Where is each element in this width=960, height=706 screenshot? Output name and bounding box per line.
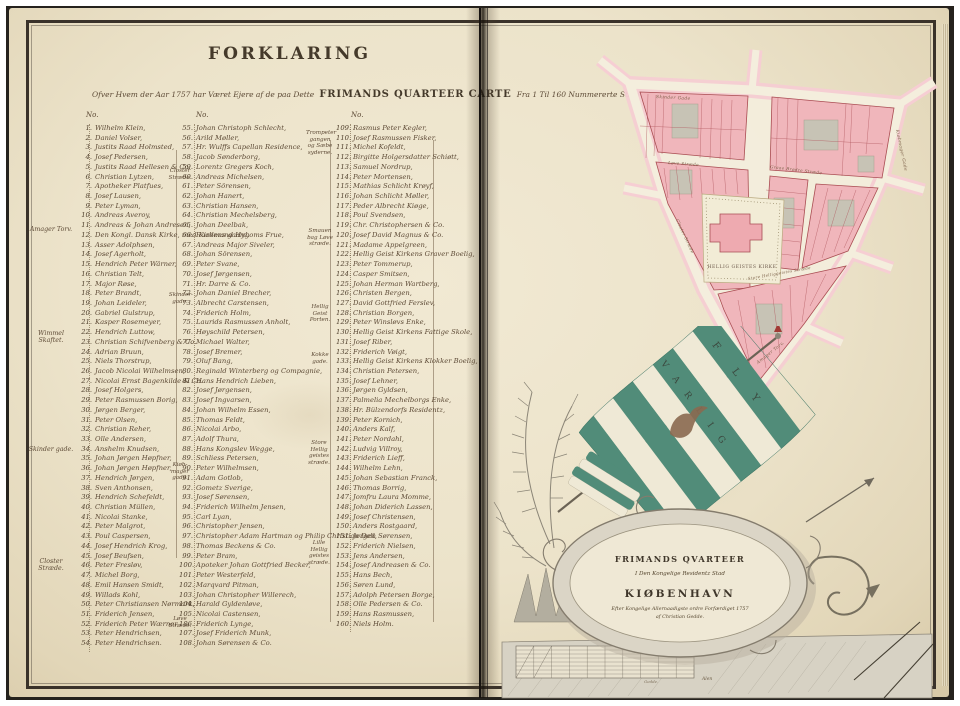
legend-entry: 121.Madame Appelgreen, xyxy=(336,241,478,251)
legend-entry: 156.Søren Lund, xyxy=(336,581,478,591)
entry-number: 130. xyxy=(336,328,353,336)
entry-number: 110. xyxy=(336,134,353,142)
entry-owner-name: Peter Svane, xyxy=(196,260,240,268)
legend-entry: 133.Hellig Geist Kirkens Klokker Boelig, xyxy=(336,357,478,367)
entry-owner-name: Emil Hansen Smidt, xyxy=(95,581,164,589)
entry-owner-name: Josef Agerholt, xyxy=(95,250,146,258)
legend-entry: 114.Peter Mortensen, xyxy=(336,173,478,183)
entry-owner-name: Christian Telt, xyxy=(95,270,144,278)
entry-number: 77. xyxy=(179,338,196,346)
entry-number: 42. xyxy=(78,522,95,530)
entry-owner-name: Johan Christoph Schlecht, xyxy=(196,124,286,132)
margin-label-kokkegade: Kokke gade. xyxy=(306,352,334,365)
margin-label-store-helliggeiststraede: Store Hellig geistes stræde. xyxy=(304,440,334,466)
entry-number: 15. xyxy=(78,260,95,268)
entry-owner-name: Oluf Bang, xyxy=(196,357,233,365)
entry-owner-name: Johan Sörensen, xyxy=(196,250,252,258)
entry-number: 64. xyxy=(179,211,196,219)
entry-owner-name: Hellig Geist Kirkens Graver Boelig, xyxy=(353,250,475,258)
legend-entry: 118.Poul Svendsen, xyxy=(336,211,478,221)
entry-number: 55. xyxy=(179,124,196,132)
margin-label-klosterstraede: Closter Stræde. xyxy=(28,558,74,573)
entry-owner-name: Michael Walter, xyxy=(196,338,250,346)
legend-entry: 131.Josef Riber, xyxy=(336,338,478,348)
entry-number: 113. xyxy=(336,163,353,171)
cartouche-commission-line: Efter Kongelige Allernaadigste ordre For… xyxy=(610,606,749,612)
entry-owner-name: Andreas Michelsen, xyxy=(196,173,264,181)
entry-number: 65. xyxy=(179,221,196,229)
entry-number: 142. xyxy=(336,445,353,453)
entry-owner-name: Josef Lehner, xyxy=(353,377,398,385)
entry-number: 80. xyxy=(179,367,196,375)
entry-number: 50. xyxy=(78,600,95,608)
margin-label-vimmelskaftet: Wimmel Skaftet. xyxy=(28,330,74,345)
entry-number: 100. xyxy=(179,561,196,569)
entry-number: 66. xyxy=(179,231,196,239)
cartouche-oval xyxy=(543,496,820,665)
entry-number: 104. xyxy=(179,600,196,608)
entry-owner-name: Christian Borgen, xyxy=(353,309,414,317)
entry-owner-name: Thomas Feldt, xyxy=(196,416,245,424)
legend-entry: 132.Friderich Vøigt, xyxy=(336,348,478,358)
entry-owner-name: Johan Herman Wartberg, xyxy=(353,280,440,288)
entry-number: 99. xyxy=(179,552,196,560)
entry-number: 44. xyxy=(78,542,95,550)
entry-number: 41. xyxy=(78,513,95,521)
entry-owner-name: Søren Lund, xyxy=(353,581,395,589)
entry-owner-name: Samuel Nordrup, xyxy=(353,163,413,171)
legend-entry: 116.Johan Schlicht Møller, xyxy=(336,192,478,202)
entry-number: 22. xyxy=(78,328,95,336)
entry-number: 19. xyxy=(78,299,95,307)
margin-label-skindergade: Skinder gade. xyxy=(28,446,74,453)
legend-entry: 108.Johan Sørensen & Co. xyxy=(179,639,377,649)
entry-owner-name: Friderich Holm, xyxy=(196,309,251,317)
entry-owner-name: Olle Andersen, xyxy=(95,435,146,443)
entry-owner-name: Poul Svendsen, xyxy=(353,211,405,219)
entry-number: 56. xyxy=(179,134,196,142)
entry-owner-name: Major Røse, xyxy=(95,280,137,288)
entry-number: 126. xyxy=(336,289,353,297)
entry-owner-name: Adolph Petersen Borge, xyxy=(353,591,435,599)
entry-number: 144. xyxy=(336,464,353,472)
map-church-label: Hellig Geistes Kirke xyxy=(708,264,777,270)
entry-number: 70. xyxy=(179,270,196,278)
entry-owner-name: Mathias Schlicht Krøyf, xyxy=(353,182,434,190)
entry-owner-name: Johan Hanert, xyxy=(196,192,244,200)
legend-column-3: 109.Rasmus Peter Kegler,110.Josef Rasmus… xyxy=(336,124,478,629)
scanned-atlas-spread: { "page": { "title": "FORKLARING" }, "su… xyxy=(0,0,960,706)
entry-number: 32. xyxy=(78,425,95,433)
entry-owner-name: Casper Smitsen, xyxy=(353,270,410,278)
legend-entry: 140.Anders Kalf, xyxy=(336,425,478,435)
entry-owner-name: Birgitte Holgersdatter Schiøtt, xyxy=(353,153,459,161)
margin-label-lille-helliggeiststraede: Lille Hellig geistes stræde. xyxy=(304,540,334,566)
entry-number: 13. xyxy=(78,241,95,249)
entry-number: 37. xyxy=(78,474,95,482)
entry-number: 101. xyxy=(179,571,196,579)
legend-entry: 157.Adolph Petersen Borge, xyxy=(336,591,478,601)
entry-number: 88. xyxy=(179,445,196,453)
entry-owner-name: Peter Tommerup, xyxy=(353,260,413,268)
entry-number: 31. xyxy=(78,416,95,424)
entry-number: 8. xyxy=(78,192,95,200)
entry-number: 116. xyxy=(336,192,353,200)
entry-number: 119. xyxy=(336,221,353,229)
entry-number: 118. xyxy=(336,211,353,219)
entry-number: 135. xyxy=(336,377,353,385)
entry-number: 11. xyxy=(78,221,95,229)
entry-owner-name: Apotheker Platfues, xyxy=(95,182,163,190)
legend-entry: 109.Rasmus Peter Kegler, xyxy=(336,124,478,134)
legend-entry: 143.Friderich Lieff, xyxy=(336,454,478,464)
entry-number: 26. xyxy=(78,367,95,375)
subtitle-lead: Ofver Hvem der Aar 1757 har Været Ejere … xyxy=(92,90,314,99)
entry-owner-name: Arild Møller, xyxy=(196,134,239,142)
entry-number: 79. xyxy=(179,357,196,365)
entry-number: 76. xyxy=(179,328,196,336)
cartouche-author-line: af Christian Gedde. xyxy=(656,614,705,620)
legend-entry: 141.Peter Nordahl, xyxy=(336,435,478,445)
entry-number: 122. xyxy=(336,250,353,258)
entry-owner-name: Hans Kongslev Wegge, xyxy=(196,445,275,453)
entry-number: 140. xyxy=(336,425,353,433)
entry-number: 68. xyxy=(179,250,196,258)
legend-entry: 115.Mathias Schlicht Krøyf, xyxy=(336,182,478,192)
entry-number: 98. xyxy=(179,542,196,550)
legend-entry: 125.Johan Herman Wartberg, xyxy=(336,280,478,290)
entry-owner-name: Josef Rasmussen Fisker, xyxy=(353,134,436,142)
entry-owner-name: Hellig Geist Kirkens Klokker Boelig, xyxy=(353,357,478,365)
entry-number: 87. xyxy=(179,435,196,443)
entry-owner-name: Andreas Major Siveler, xyxy=(196,241,275,249)
entry-number: 35. xyxy=(78,454,95,462)
palm-fronds xyxy=(494,382,578,566)
entry-number: 147. xyxy=(336,493,353,501)
entry-owner-name: Anders Kalf, xyxy=(353,425,395,433)
entry-number: 81. xyxy=(179,377,196,385)
entry-owner-name: Madame Appelgreen, xyxy=(353,241,427,249)
entry-owner-name: Andreas & Johan Andresen, xyxy=(95,221,191,229)
legend-entry: 127.David Gottfried Ferslev, xyxy=(336,299,478,309)
entry-number: 114. xyxy=(336,173,353,181)
legend-entry: 112.Birgitte Holgersdatter Schiøtt, xyxy=(336,153,478,163)
entry-number: 132. xyxy=(336,348,353,356)
entry-owner-name: Peter Lyman, xyxy=(95,202,141,210)
entry-owner-name: Johan Sebastian Franck, xyxy=(353,474,437,482)
entry-owner-name: Johan Jørgen Høpfner, xyxy=(95,464,172,472)
entry-number: 20. xyxy=(78,309,95,317)
legend-entry: 139.Peter Kornich, xyxy=(336,416,478,426)
entry-number: 33. xyxy=(78,435,95,443)
entry-owner-name: Michel Borg, xyxy=(95,571,140,579)
entry-owner-name: Johan Sørensen & Co. xyxy=(196,639,272,647)
gutter-line-2 xyxy=(487,8,488,698)
entry-number: 111. xyxy=(336,143,353,151)
entry-number: 120. xyxy=(336,231,353,239)
legend-entry: 130.Hellig Geist Kirkens Fattige Skole, xyxy=(336,328,478,338)
entry-owner-name: Josef Holgers, xyxy=(95,386,143,394)
entry-owner-name: Kasper Rosemeyer, xyxy=(95,318,161,326)
entry-owner-name: Hendrich Luttow, xyxy=(95,328,155,336)
entry-owner-name: Friderich Lynge, xyxy=(196,620,253,628)
entry-owner-name: Josef Christensen, xyxy=(353,513,416,521)
legend-entry: 120.Josef David Magnus & Co. xyxy=(336,231,478,241)
entry-owner-name: Hellig Geist Kirkens Fattige Skole, xyxy=(353,328,472,336)
entry-number: 1. xyxy=(78,124,95,132)
entry-owner-name: Gabriel Gulstrup, xyxy=(95,309,155,317)
legend-entry: 124.Casper Smitsen, xyxy=(336,270,478,280)
entry-owner-name: Wilhelm Klein, xyxy=(95,124,145,132)
entry-owner-name: Peter Hendrichsen, xyxy=(95,629,162,637)
entry-owner-name: Peter Wilhelmsen, xyxy=(196,464,259,472)
legend-entry: 134.Christian Petersen, xyxy=(336,367,478,377)
entry-owner-name: Johan Daniel Brecher, xyxy=(196,289,271,297)
entry-owner-name: Schliess Petersen, xyxy=(196,454,259,462)
entry-number: 39. xyxy=(78,493,95,501)
entry-owner-name: Peter Nordahl, xyxy=(353,435,404,443)
entry-owner-name: Daniel Volser, xyxy=(95,134,142,142)
entry-number: 49. xyxy=(78,591,95,599)
entry-owner-name: Josef Lausen, xyxy=(95,192,141,200)
entry-owner-name: Peder Albrecht Kiøge, xyxy=(353,202,429,210)
spear-head xyxy=(864,478,874,487)
entry-number: 156. xyxy=(336,581,353,589)
entry-owner-name: Raadmand Hygoms Frue, xyxy=(196,231,284,239)
entry-number: 133. xyxy=(336,357,353,365)
entry-owner-name: Peter Brandt, xyxy=(95,289,141,297)
entry-number: 5. xyxy=(78,163,95,171)
legend-entry: 145.Johan Sebastian Franck, xyxy=(336,474,478,484)
legend-entry: 149.Josef Christensen, xyxy=(336,513,478,523)
subtitle: Ofver Hvem der Aar 1757 har Været Ejere … xyxy=(92,82,482,101)
entry-owner-name: Peter Bram, xyxy=(196,552,237,560)
entry-number: 17. xyxy=(78,280,95,288)
entry-owner-name: Thomas Borrig, xyxy=(353,484,406,492)
entry-number: 24. xyxy=(78,348,95,356)
entry-number: 23. xyxy=(78,338,95,346)
legend-entry: 136.Jørgen Gyldsen, xyxy=(336,386,478,396)
entry-owner-name: Asser Adolphsen, xyxy=(95,241,155,249)
entry-owner-name: Josef Beufsen, xyxy=(95,552,144,560)
entry-number: 10. xyxy=(78,211,95,219)
entry-owner-name: Johan Jørgen Høpfner, xyxy=(95,454,172,462)
entry-owner-name: Peter Westerfeld, xyxy=(196,571,256,579)
entry-number: 18. xyxy=(78,289,95,297)
entry-owner-name: Ludvig Villroy, xyxy=(353,445,403,453)
entry-owner-name: Johan Schlicht Møller, xyxy=(353,192,429,200)
legend-entry: 152.Friderich Nielsen, xyxy=(336,542,478,552)
entry-number: 2. xyxy=(78,134,95,142)
entry-owner-name: Christopher Jensen, xyxy=(196,522,265,530)
entry-owner-name: Anshelm Knudsen, xyxy=(95,445,159,453)
entry-number: 152. xyxy=(336,542,353,550)
entry-number: 61. xyxy=(179,182,196,190)
entry-owner-name: Hans Rasmussen, xyxy=(353,610,414,618)
entry-owner-name: Reginald Winterberg og Compagnie, xyxy=(196,367,322,375)
cartouche-city: KIØBENHAVN xyxy=(625,588,736,600)
entry-number: 155. xyxy=(336,571,353,579)
entry-number: 138. xyxy=(336,406,353,414)
entry-number: 48. xyxy=(78,581,95,589)
entry-number: 127. xyxy=(336,299,353,307)
entry-owner-name: Hendrich Peter Wärner, xyxy=(95,260,177,268)
flag-finial xyxy=(775,333,781,339)
entry-owner-name: Christian Müllen, xyxy=(95,503,155,511)
entry-owner-name: Christian Mechelsberg, xyxy=(196,211,277,219)
entry-number: 58. xyxy=(179,153,196,161)
margin-label-skindergade-2: Skinder gade. xyxy=(165,292,195,305)
entry-owner-name: Christian Petersen, xyxy=(353,367,419,375)
entry-owner-name: Adolf Thura, xyxy=(196,435,239,443)
entry-number: 95. xyxy=(179,513,196,521)
cartouche-subtitle: I Den Kongelige Residentz Stad xyxy=(634,571,725,577)
entry-owner-name: Peter Hendrichsen. xyxy=(95,639,162,647)
entry-number: 34. xyxy=(78,445,95,453)
entry-owner-name: Christian Reher, xyxy=(95,425,151,433)
entry-number: 30. xyxy=(78,406,95,414)
entry-number: 92. xyxy=(179,484,196,492)
legend-entry: 155.Hans Bech, xyxy=(336,571,478,581)
entry-owner-name: Nicolai Arbo, xyxy=(196,425,241,433)
entry-owner-name: Palmelia Mechelborgs Enke, xyxy=(353,396,451,404)
entry-owner-name: Friderich Vøigt, xyxy=(353,348,407,356)
entry-owner-name: Johan Deelbak, xyxy=(196,221,248,229)
entry-owner-name: Hr. Bülzendorfs Residentz, xyxy=(353,406,445,414)
entry-owner-name: Apoteker Johan Gottfried Becker, xyxy=(196,561,311,569)
legend-entry: 113.Samuel Nordrup, xyxy=(336,163,478,173)
entry-owner-name: Johan Christopher Willerech, xyxy=(196,591,296,599)
entry-owner-name: Michel Kofeldt, xyxy=(353,143,406,151)
entry-number: 75. xyxy=(179,318,196,326)
entry-owner-name: Friderich Lieff, xyxy=(353,454,405,462)
flag-finial-tuft xyxy=(774,326,782,332)
entry-owner-name: Josef Sørensen, xyxy=(196,493,249,501)
entry-number: 57. xyxy=(179,143,196,151)
entry-number: 139. xyxy=(336,416,353,424)
entry-owner-name: Peter Malgrot, xyxy=(95,522,145,530)
entry-number: 21. xyxy=(78,318,95,326)
entry-number: 40. xyxy=(78,503,95,511)
margin-label-loevstraede: Løve Stræde. xyxy=(165,616,195,629)
entry-number: 53. xyxy=(78,629,95,637)
entry-number: 51. xyxy=(78,610,95,618)
entry-number: 153. xyxy=(336,552,353,560)
entry-number: 96. xyxy=(179,522,196,530)
gutter-line xyxy=(479,8,481,698)
margin-label-trompetergangen: Trompeter gangen og Sæbe syderne. xyxy=(306,130,334,156)
entry-number: 38. xyxy=(78,484,95,492)
entry-owner-name: Hans Bech, xyxy=(353,571,392,579)
margin-label-smauen: Smauen bag Løve stræde. xyxy=(306,228,334,248)
entry-owner-name: Adrian Bruun, xyxy=(95,348,144,356)
legend-entry: 107.Josef Friderich Munk, xyxy=(179,629,377,639)
entry-owner-name: Lorentz Gregers Koch, xyxy=(196,163,274,171)
entry-number: 3. xyxy=(78,143,95,151)
entry-number: 117. xyxy=(336,202,353,210)
entry-owner-name: Josef David Magnus & Co. xyxy=(353,231,443,239)
entry-owner-name: Anders Rostgaard, xyxy=(353,522,417,530)
legend-entry: 135.Josef Lehner, xyxy=(336,377,478,387)
column1-header: No. xyxy=(86,111,98,119)
entry-number: 16. xyxy=(78,270,95,278)
spear-icon xyxy=(806,478,874,522)
entry-number: 123. xyxy=(336,260,353,268)
entry-number: 102. xyxy=(179,581,196,589)
entry-owner-name: Johan Leideler, xyxy=(95,299,147,307)
entry-owner-name: Jomfru Laura Momme, xyxy=(353,493,431,501)
entry-owner-name: Johan Wilhelm Essen, xyxy=(196,406,271,414)
legend-entry: 160.Niels Holm. xyxy=(336,620,478,630)
entry-owner-name: Marqvard Pitman, xyxy=(196,581,259,589)
legend-entry: 159.Hans Rasmussen, xyxy=(336,610,478,620)
entry-number: 71. xyxy=(179,280,196,288)
legend-entry: 153.Jens Andersen, xyxy=(336,552,478,562)
legend-entry: 150.Anders Rostgaard, xyxy=(336,522,478,532)
margin-label-helliggeist-porten: Hellig Geist Porten. xyxy=(306,304,334,324)
entry-owner-name: Friderich Jensen, xyxy=(95,610,154,618)
entry-owner-name: Peter Rasmussen Borig, xyxy=(95,396,178,404)
entry-owner-name: Wilhelm Lehn, xyxy=(353,464,403,472)
entry-owner-name: Rasmus Peter Kegler, xyxy=(353,124,427,132)
entry-owner-name: Jacob Sønderborg, xyxy=(196,153,260,161)
scale-unit-label: Alen xyxy=(701,676,712,682)
entry-owner-name: Niels Thorstrup, xyxy=(95,357,152,365)
book-gutter-shadow xyxy=(466,8,500,698)
legend-entry: 154.Josef Andreasen & Co. xyxy=(336,561,478,571)
entry-number: 115. xyxy=(336,182,353,190)
entry-number: 27. xyxy=(78,377,95,385)
entry-number: 145. xyxy=(336,474,353,482)
column2-header: No. xyxy=(196,111,208,119)
entry-owner-name: Niels Holm. xyxy=(353,620,394,628)
entry-owner-name: Harald Gyldenløve, xyxy=(196,600,262,608)
entry-owner-name: Peter Winsløvs Enke, xyxy=(353,318,426,326)
entry-number: 134. xyxy=(336,367,353,375)
entry-owner-name: Sven Anthonsen, xyxy=(95,484,153,492)
entry-owner-name: Josef Riber, xyxy=(353,338,392,346)
legend-entry: 158.Olle Pedersen & Co. xyxy=(336,600,478,610)
entry-owner-name: Andreas Averoy, xyxy=(95,211,151,219)
legend-entry: 146.Thomas Borrig, xyxy=(336,484,478,494)
legend-entry: 117.Peder Albrecht Kiøge, xyxy=(336,202,478,212)
margin-label-klosterstraede-2: Closter Stræde. xyxy=(165,168,195,181)
entry-owner-name: Peter Mortensen, xyxy=(353,173,413,181)
entry-owner-name: Nicolai Castensen, xyxy=(196,610,261,618)
entry-owner-name: Adam Gotlob, xyxy=(196,474,243,482)
entry-number: 69. xyxy=(179,260,196,268)
entry-owner-name: Josef Jørgensen, xyxy=(196,386,252,394)
margin-label-amager-torv: Amager Torv. xyxy=(28,226,74,233)
legend-entry: 142.Ludvig Villroy, xyxy=(336,445,478,455)
entry-number: 47. xyxy=(78,571,95,579)
entry-number: 28. xyxy=(78,386,95,394)
entry-owner-name: Gometz Sverige, xyxy=(196,484,253,492)
entry-owner-name: Nicolai Stanke, xyxy=(95,513,148,521)
legend-entry: 128.Christian Borgen, xyxy=(336,309,478,319)
entry-owner-name: Christen Bergen, xyxy=(353,289,412,297)
dragon-ornament xyxy=(808,557,880,615)
entry-owner-name: Friderich Nielsen, xyxy=(353,542,416,550)
entry-number: 150. xyxy=(336,522,353,530)
entry-number: 94. xyxy=(179,503,196,511)
title-cartouche: Alen Gedde. FLY VARLIG xyxy=(488,326,935,702)
entry-number: 93. xyxy=(179,493,196,501)
entry-owner-name: Peter Kornich, xyxy=(353,416,403,424)
entry-owner-name: Jørgen Berger, xyxy=(95,406,145,414)
entry-owner-name: Peter Olsen, xyxy=(95,416,137,424)
entry-owner-name: Hendrich Jørgen, xyxy=(95,474,154,482)
